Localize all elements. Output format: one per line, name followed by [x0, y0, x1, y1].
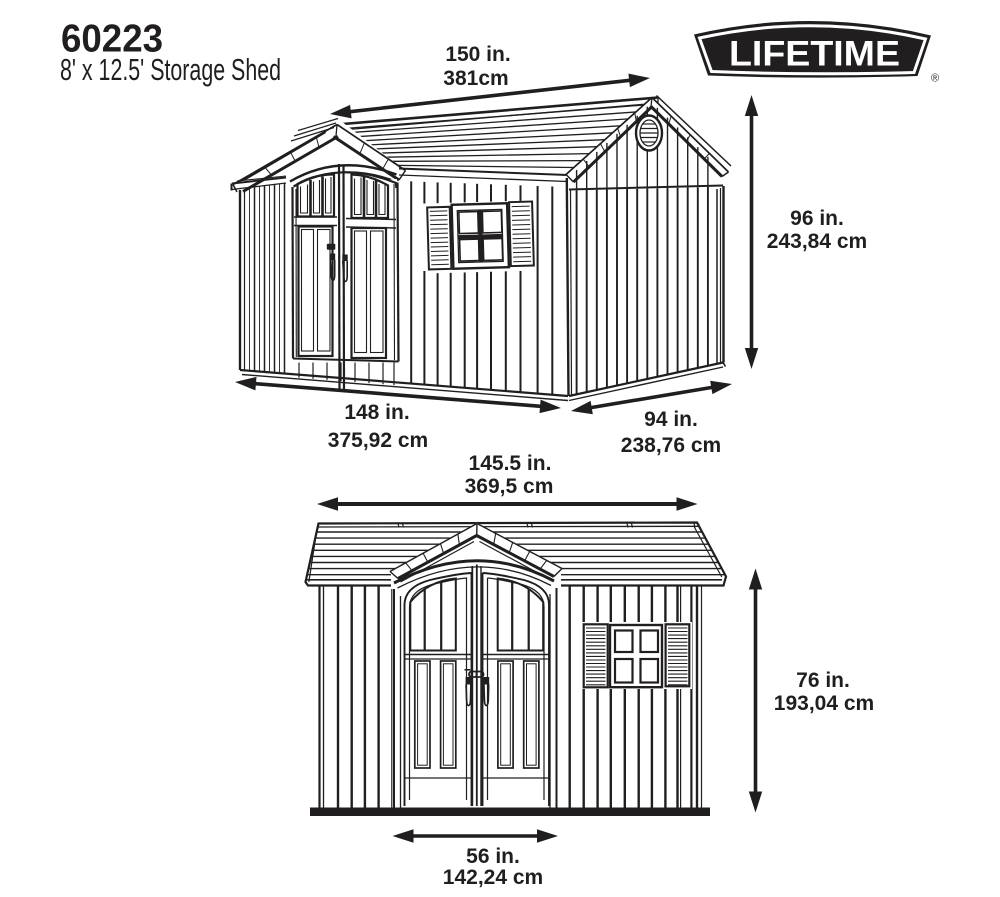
svg-text:8' x 12.5' Storage Shed: 8' x 12.5' Storage Shed — [60, 52, 281, 87]
svg-text:LIFETIME: LIFETIME — [729, 35, 900, 74]
svg-text:96 in.: 96 in. — [790, 207, 844, 230]
svg-text:238,76 cm: 238,76 cm — [621, 434, 721, 457]
svg-text:375,92 cm: 375,92 cm — [328, 429, 428, 452]
svg-text:369,5 cm: 369,5 cm — [465, 475, 554, 498]
svg-text:148 in.: 148 in. — [344, 401, 409, 424]
svg-text:145.5 in.: 145.5 in. — [469, 452, 552, 475]
svg-text:®: ® — [931, 73, 939, 85]
svg-text:76 in.: 76 in. — [796, 669, 850, 692]
svg-text:142,24 cm: 142,24 cm — [443, 866, 543, 889]
svg-text:94 in.: 94 in. — [644, 408, 698, 431]
svg-text:193,04 cm: 193,04 cm — [774, 692, 874, 715]
svg-text:150 in.: 150 in. — [445, 43, 510, 66]
svg-text:381cm: 381cm — [443, 67, 508, 90]
svg-text:243,84 cm: 243,84 cm — [767, 230, 867, 253]
svg-text:56 in.: 56 in. — [466, 845, 520, 868]
